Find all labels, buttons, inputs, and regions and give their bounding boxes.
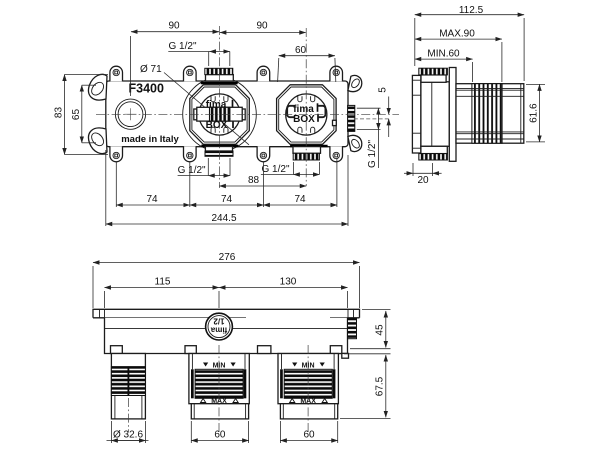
svg-text:88: 88 [248, 175, 260, 186]
svg-text:74: 74 [221, 194, 233, 205]
svg-text:276: 276 [219, 252, 236, 263]
svg-text:MIN.60: MIN.60 [427, 48, 460, 59]
svg-text:MAX.90: MAX.90 [439, 28, 475, 39]
svg-text:5: 5 [378, 87, 389, 93]
svg-text:65: 65 [71, 109, 82, 121]
svg-text:BOX: BOX [293, 114, 315, 125]
svg-text:130: 130 [280, 277, 297, 288]
svg-text:74: 74 [146, 194, 158, 205]
svg-text:60: 60 [214, 430, 226, 441]
svg-text:1/2: 1/2 [213, 317, 225, 326]
svg-text:67.5: 67.5 [375, 376, 386, 396]
svg-text:83: 83 [54, 107, 65, 119]
svg-text:fima: fima [210, 326, 227, 335]
svg-text:115: 115 [155, 277, 171, 288]
svg-text:made in Italy: made in Italy [121, 134, 179, 145]
svg-text:74: 74 [294, 194, 306, 205]
svg-text:90: 90 [168, 21, 180, 32]
svg-text:244.5: 244.5 [211, 213, 236, 224]
svg-text:G 1/2": G 1/2" [367, 140, 378, 168]
svg-text:G 1/2": G 1/2" [178, 165, 206, 176]
svg-text:Ø 32.6: Ø 32.6 [113, 430, 143, 441]
svg-text:45: 45 [375, 324, 386, 336]
svg-text:60: 60 [295, 45, 307, 56]
svg-text:F3400: F3400 [129, 82, 164, 96]
svg-text:112.5: 112.5 [459, 5, 484, 16]
svg-text:61.6: 61.6 [529, 103, 540, 123]
svg-text:90: 90 [256, 21, 268, 32]
svg-text:60: 60 [303, 430, 315, 441]
svg-text:Ø 71: Ø 71 [140, 64, 162, 75]
svg-text:G 1/2": G 1/2" [262, 164, 290, 175]
svg-text:G 1/2": G 1/2" [169, 41, 197, 52]
svg-text:20: 20 [417, 175, 429, 186]
